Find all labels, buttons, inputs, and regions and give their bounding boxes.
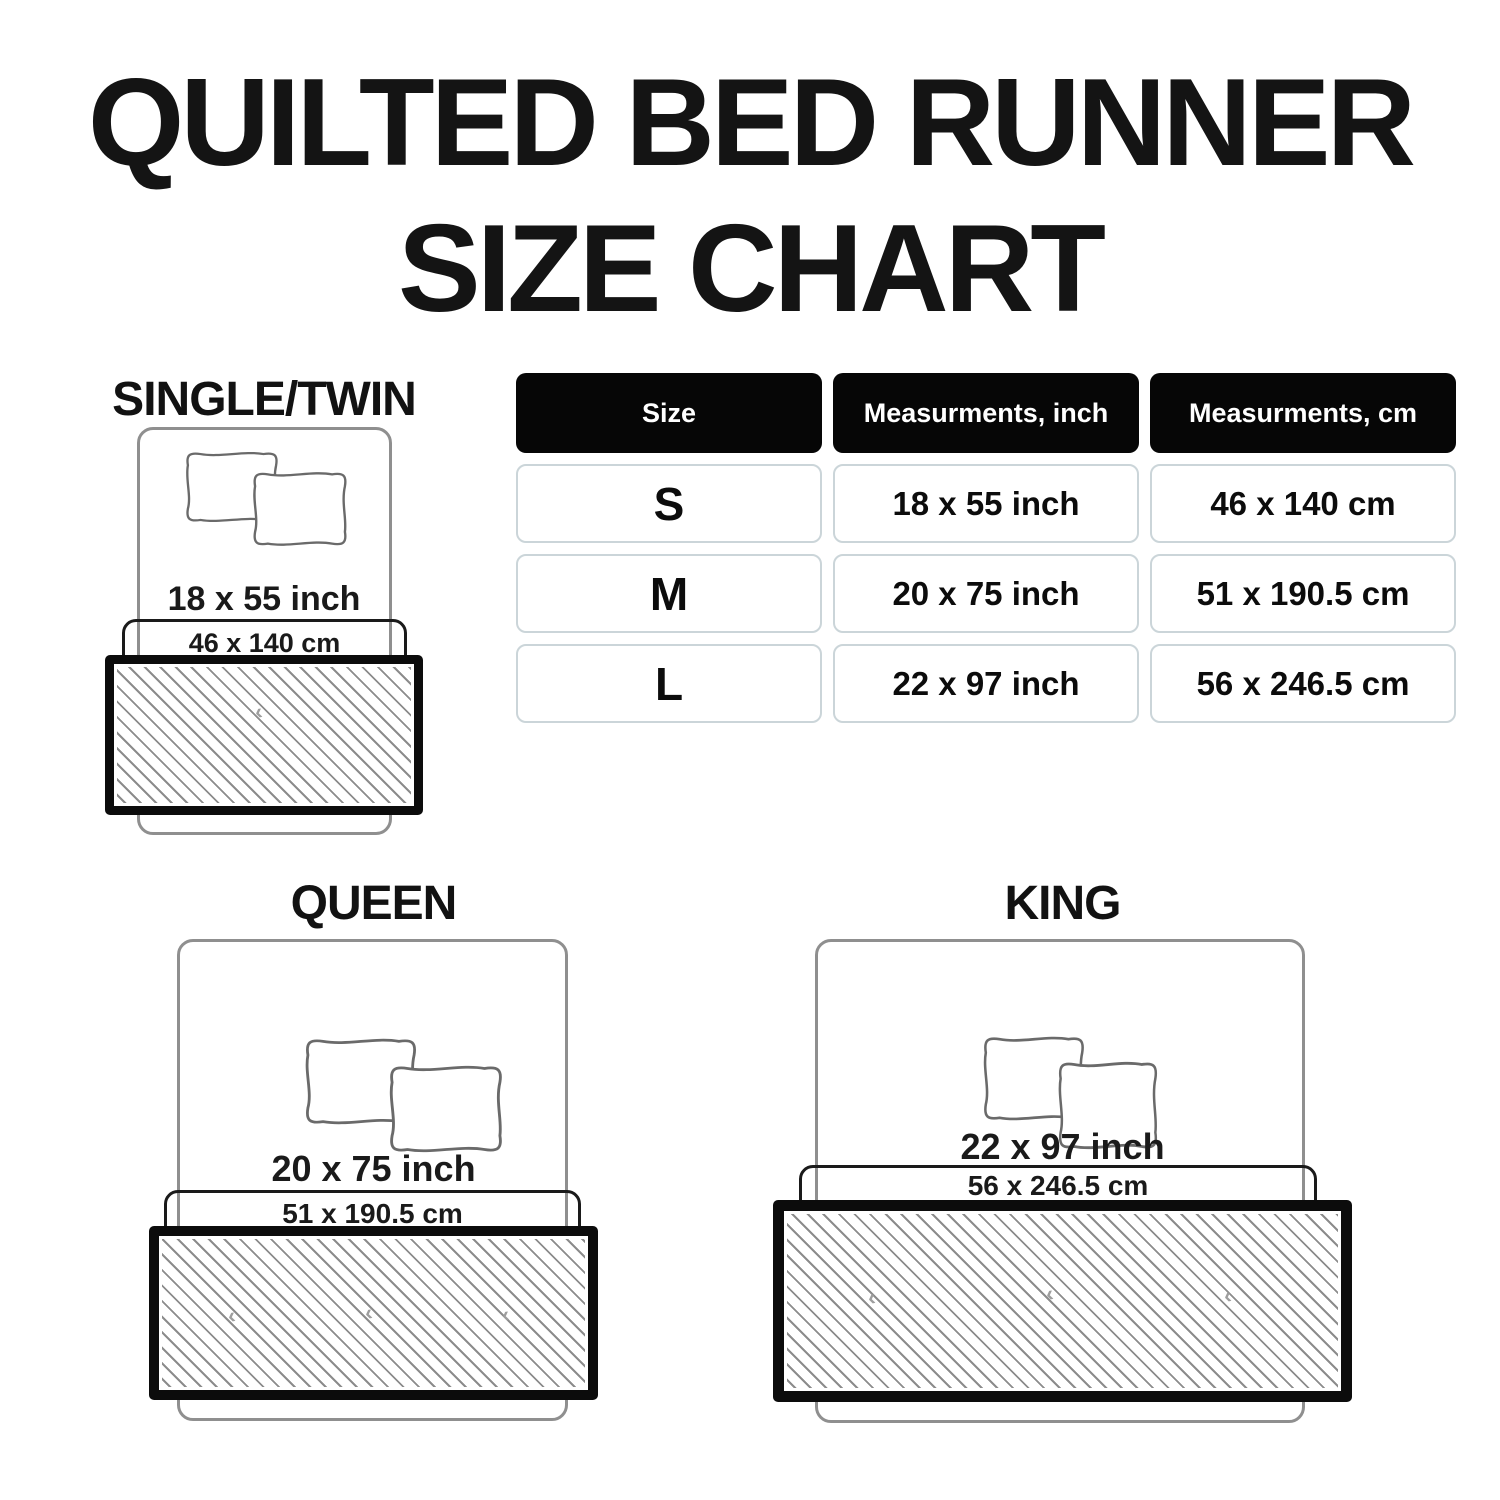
bed-runner-swatch: ‹ (105, 655, 423, 815)
table-cell-inch-m: 20 x 75 inch (833, 554, 1139, 633)
diagram-label: SINGLE/TWIN (105, 372, 423, 427)
page-title-line2: SIZE CHART (0, 196, 1500, 342)
table-header-cm: Measurments, cm (1150, 373, 1456, 453)
cm-measurement-label: 56 x 246.5 cm (802, 1168, 1314, 1202)
page-title-line1: QUILTED BED RUNNER (0, 50, 1500, 196)
pillow-icon (245, 468, 355, 550)
diagram-label: QUEEN (149, 876, 598, 931)
table-cell-cm-m: 51 x 190.5 cm (1150, 554, 1456, 633)
table-cell-cm-l: 56 x 246.5 cm (1150, 644, 1456, 723)
size-table: Size Measurments, inch Measurments, cm S… (516, 373, 1456, 723)
inch-measurement-label: 20 x 75 inch (149, 1148, 598, 1190)
page-title: QUILTED BED RUNNER SIZE CHART (0, 50, 1500, 343)
stitch-mark: ‹ (253, 700, 264, 723)
inch-measurement-label: 22 x 97 inch (773, 1126, 1352, 1168)
cm-measurement-label: 46 x 140 cm (125, 622, 404, 659)
bed-runner-swatch: ‹ ‹ ‹ (149, 1226, 598, 1400)
bed-runner-swatch: ‹ ‹ ‹ (773, 1200, 1352, 1402)
stitch-mark: ‹ (1222, 1284, 1233, 1307)
table-header-size: Size (516, 373, 822, 453)
table-cell-size-m: M (516, 554, 822, 633)
cm-measurement-label: 51 x 190.5 cm (167, 1193, 578, 1230)
diagram-label: KING (773, 876, 1352, 931)
table-cell-size-s: S (516, 464, 822, 543)
size-chart-page: QUILTED BED RUNNER SIZE CHART Size Measu… (0, 0, 1500, 1500)
stitch-mark: ‹ (363, 1302, 374, 1325)
stitch-mark: ‹ (500, 1303, 511, 1326)
diagram-king: KING 22 x 97 inch 56 x 246.5 cm ‹ ‹ ‹ (773, 876, 1352, 1425)
stitch-mark: ‹ (226, 1305, 237, 1328)
table-header-inch: Measurments, inch (833, 373, 1139, 453)
stitch-mark: ‹ (1044, 1283, 1055, 1306)
table-cell-cm-s: 46 x 140 cm (1150, 464, 1456, 543)
table-cell-inch-l: 22 x 97 inch (833, 644, 1139, 723)
stitch-mark: ‹ (866, 1286, 877, 1309)
pillow-icon (380, 1061, 512, 1157)
table-cell-inch-s: 18 x 55 inch (833, 464, 1139, 543)
table-cell-size-l: L (516, 644, 822, 723)
diagram-single-twin: SINGLE/TWIN 18 x 55 inch 46 x 140 cm ‹ (105, 372, 423, 835)
diagram-queen: QUEEN 20 x 75 inch 51 x 190.5 cm ‹ ‹ ‹ (149, 876, 598, 1422)
inch-measurement-label: 18 x 55 inch (105, 580, 423, 619)
